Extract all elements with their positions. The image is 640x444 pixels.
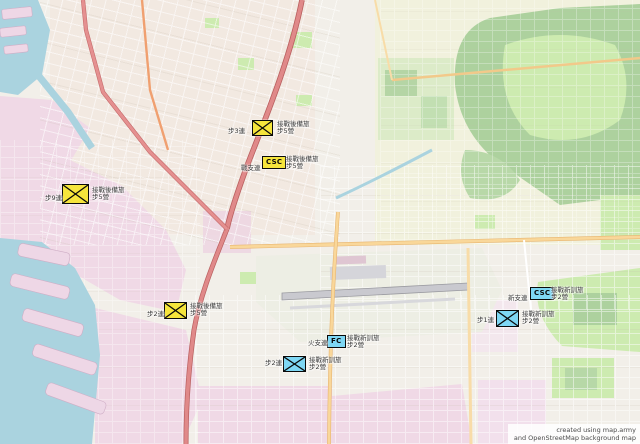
unit-designation-label-reserve-infantry-south: 步2連 bbox=[147, 311, 164, 318]
formation-label-training-infantry-east: 接戰新訓旅步2營 bbox=[522, 311, 555, 326]
unit-designation-label-reserve-infantry-north: 步3連 bbox=[228, 128, 245, 135]
formation-label-reserve-infantry-north: 接戰後備旅步5營 bbox=[277, 121, 310, 136]
infantry-unit-symbol-reserve-infantry-south[interactable] bbox=[164, 302, 187, 319]
unit-designation-label-training-csc: 新支連 bbox=[508, 295, 528, 302]
formation-label-training-csc: 接戰新訓旅步2營 bbox=[551, 287, 584, 302]
infantry-cross-icon bbox=[284, 357, 305, 371]
formation-label-reserve-infantry-west: 接戰後備旅步5營 bbox=[92, 187, 125, 202]
infantry-unit-symbol-reserve-infantry-north[interactable] bbox=[252, 120, 273, 136]
attribution-line1: created using map.army bbox=[514, 426, 636, 434]
infantry-unit-symbol-training-infantry-airport[interactable] bbox=[283, 356, 306, 372]
attribution-line2: and OpenStreetMap background map bbox=[514, 434, 636, 442]
unit-designation-label-training-infantry-east: 步1連 bbox=[477, 317, 494, 324]
harbor-water bbox=[0, 0, 100, 444]
infantry-cross-icon bbox=[63, 185, 88, 203]
formation-label-reserve-csc: 接戰後備旅步5營 bbox=[286, 156, 319, 171]
infantry-cross-icon bbox=[165, 303, 186, 318]
unit-designation-label-training-fc: 火支連 bbox=[308, 340, 328, 347]
formation-label-reserve-infantry-south: 接戰後備旅步5營 bbox=[190, 303, 223, 318]
infantry-unit-symbol-reserve-infantry-west[interactable] bbox=[62, 184, 89, 204]
infantry-cross-icon bbox=[253, 121, 272, 135]
infantry-unit-symbol-training-infantry-east[interactable] bbox=[496, 310, 519, 327]
map-feature-layer bbox=[0, 0, 640, 444]
unit-designation-label-reserve-csc: 戰支連 bbox=[241, 165, 261, 172]
map-canvas[interactable]: 接戰後備旅步5營步3連CSC接戰後備旅步5營戰支連 接戰後備旅步5營步9連 接戰… bbox=[0, 0, 640, 444]
infantry-cross-icon bbox=[497, 311, 518, 326]
unit-designation-label-reserve-infantry-west: 步9連 bbox=[45, 195, 62, 202]
major-roads bbox=[83, 0, 640, 444]
formation-label-training-infantry-airport: 接戰新訓旅步2營 bbox=[309, 357, 342, 372]
canal bbox=[38, 75, 92, 148]
map-attribution: created using map.army and OpenStreetMap… bbox=[508, 424, 640, 444]
csc-unit-badge-reserve-csc[interactable]: CSC bbox=[262, 156, 286, 169]
fc-unit-badge-training-fc[interactable]: FC bbox=[327, 335, 346, 348]
formation-label-training-fc: 接戰新訓旅步2營 bbox=[347, 335, 380, 350]
river bbox=[336, 150, 432, 198]
airport-runway bbox=[282, 255, 468, 308]
unit-designation-label-training-infantry-airport: 步2連 bbox=[265, 360, 282, 367]
